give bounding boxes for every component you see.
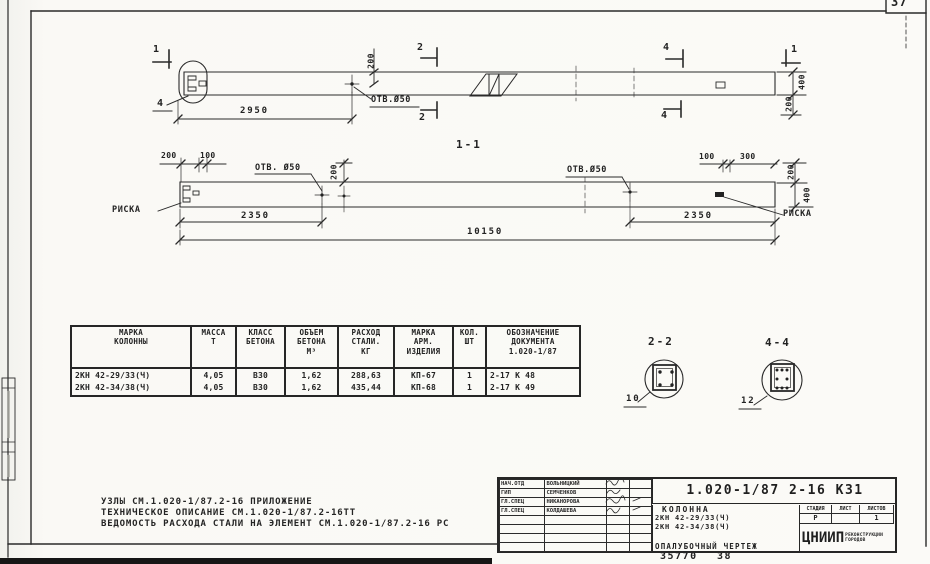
section-mark-1-right-label: 1 — [791, 44, 799, 55]
cell-value: КП-68 — [398, 382, 449, 394]
empty-cell — [607, 543, 630, 552]
sig-name: СЕМЧЕНКОВ — [545, 489, 607, 498]
sheets-header: ЛИСТОВ — [860, 505, 894, 515]
cell-value: 288,63 — [342, 370, 390, 382]
detail-2-2-callout: 10 — [626, 394, 640, 404]
subject-title: КОЛОННА — [662, 505, 710, 514]
note-line-2: ТЕХНИЧЕСКОЕ ОПИСАНИЕ СМ.1.020-1/87.2-16Т… — [101, 508, 356, 518]
sig-name: НИКАНОРОВА — [545, 498, 607, 507]
col-header-oboznachenie: ОБОЗНАЧЕНИЕ ДОКУМЕНТА 1.020-1/87 — [486, 326, 580, 368]
empty-cell — [545, 543, 607, 552]
sheet-value — [832, 514, 860, 524]
cell-kol: 1 1 — [453, 368, 486, 396]
empty-cell — [545, 516, 607, 525]
cell-value: 435,44 — [342, 382, 390, 394]
dim-2350-left: 2350 — [241, 211, 270, 221]
note-line-3: ВЕДОМОСТЬ РАСХОДА СТАЛИ НА ЭЛЕМЕНТ СМ.1.… — [101, 519, 449, 529]
dim-100-right: 100 — [699, 152, 715, 161]
document-number: 1.020-1/87 2-16 К31 — [652, 479, 897, 504]
sheets-value: 1 — [860, 514, 894, 524]
sig-role: ГЛ.СПЕЦ — [500, 498, 545, 507]
sig-signature-cell — [607, 489, 630, 498]
section-mark-2-top-label: 2 — [417, 42, 425, 53]
empty-cell — [500, 525, 545, 534]
section-mark-1-left-label: 1 — [153, 44, 161, 55]
hole-label-right: ОТВ.Ø50 — [567, 165, 607, 175]
cell-value: В30 — [240, 382, 281, 394]
cell-value: КП-67 — [398, 370, 449, 382]
signature-row-empty — [500, 525, 652, 534]
cell-value: 2КН 42-34/38(Ч) — [75, 382, 187, 394]
dim-200-right-vert: 200 — [787, 164, 796, 180]
detail-2-2-title: 2-2 — [648, 335, 674, 348]
organization-line-2: ГОРОДОВ — [845, 538, 883, 543]
empty-cell — [630, 534, 652, 543]
cell-value: 2КН 42-29/33(Ч) — [75, 370, 187, 382]
dim-2950: 2950 — [240, 106, 269, 116]
empty-cell — [500, 516, 545, 525]
empty-cell — [607, 516, 630, 525]
hole-label-plan: ОТВ.Ø50 — [371, 95, 411, 105]
cell-value: 4,05 — [195, 382, 232, 394]
cell-value: 1 — [457, 370, 482, 382]
dim-200-plan: 200 — [367, 53, 376, 69]
col-header-marka-arm: МАРКА АРМ. ИЗДЕЛИЯ — [394, 326, 453, 368]
signature-row-empty — [500, 516, 652, 525]
spec-header-row: МАРКА КОЛОННЫ МАССА Т КЛАСС БЕТОНА ОБЪЕМ… — [71, 326, 580, 368]
col-header-marka: МАРКА КОЛОННЫ — [71, 326, 191, 368]
cell-value: 2-17 К 48 — [490, 370, 576, 382]
sig-name: КОЛДАШЕВА — [545, 507, 607, 516]
cell-rashod: 288,63 435,44 — [338, 368, 394, 396]
signature-row: ГЛ.СПЕЦ КОЛДАШЕВА — [500, 507, 652, 516]
sig-role: НАЧ.ОТД — [500, 480, 545, 489]
dim-10150-total: 10150 — [467, 227, 503, 237]
organization-subtitle: РЕКОНСТРУКЦИИ ГОРОДОВ — [845, 533, 883, 543]
drawing-type: ОПАЛУБОЧНЫЙ ЧЕРТЕЖ — [655, 542, 758, 551]
cell-value: 1,62 — [289, 370, 334, 382]
col-header-rashod: РАСХОД СТАЛИ. КГ — [338, 326, 394, 368]
detail-4-4-title: 4-4 — [765, 336, 791, 349]
stage-header: СТАДИЯ — [800, 505, 832, 515]
dim-400-plan-end: 400 — [798, 74, 807, 90]
sig-role: ГЛ.СПЕЦ — [500, 507, 545, 516]
sig-date-cell — [630, 489, 652, 498]
spec-data-row: 2КН 42-29/33(Ч) 2КН 42-34/38(Ч) 4,05 4,0… — [71, 368, 580, 396]
sig-date-cell — [630, 498, 652, 507]
spec-table: МАРКА КОЛОННЫ МАССА Т КЛАСС БЕТОНА ОБЪЕМ… — [70, 325, 581, 397]
stage-value: Р — [800, 514, 832, 524]
empty-cell — [500, 534, 545, 543]
dim-2350-right: 2350 — [684, 211, 713, 221]
sheet-header: ЛИСТ — [832, 505, 860, 515]
riska-label-right: РИСКА — [783, 209, 812, 219]
detail-sections-lines — [624, 360, 802, 409]
empty-cell — [545, 534, 607, 543]
sig-signature-cell — [607, 507, 630, 516]
empty-cell — [630, 525, 652, 534]
sig-role: ГИП — [500, 489, 545, 498]
dim-300-right: 300 — [740, 152, 756, 161]
empty-cell — [607, 525, 630, 534]
drawing-sheet: 1 2 2 4 4 1 4 2950 ОТВ.Ø50 200 400 200 1… — [0, 0, 930, 564]
sig-date-cell — [630, 480, 652, 489]
cell-value: 2-17 К 49 — [490, 382, 576, 394]
hole-label-left: ОТВ. Ø50 — [255, 163, 301, 173]
detail-4-4-callout: 12 — [741, 396, 755, 406]
col-header-massa: МАССА Т — [191, 326, 236, 368]
organization-logo: ЦНИИП — [802, 530, 844, 546]
col-header-kol: КОЛ. ШТ — [453, 326, 486, 368]
organization-line-1: РЕКОНСТРУКЦИИ — [845, 533, 883, 538]
sig-signature-cell — [607, 498, 630, 507]
dim-100-left: 100 — [200, 151, 216, 160]
cell-obem: 1,62 1,62 — [285, 368, 338, 396]
signature-row-empty — [500, 543, 652, 552]
empty-cell — [500, 543, 545, 552]
cell-value: 1,62 — [289, 382, 334, 394]
cell-value: 1 — [457, 382, 482, 394]
cell-klass: В30 В30 — [236, 368, 285, 396]
sig-date-cell — [630, 507, 652, 516]
cell-marka: 2КН 42-29/33(Ч) 2КН 42-34/38(Ч) — [71, 368, 191, 396]
sig-signature-cell — [607, 480, 630, 489]
organization-cell: ЦНИИП РЕКОНСТРУКЦИИ ГОРОДОВ — [799, 524, 897, 552]
sig-name: ВОЛЬНИЦКИЙ — [545, 480, 607, 489]
empty-cell — [607, 534, 630, 543]
stage-grid: СТАДИЯ ЛИСТ ЛИСТОВ Р 1 — [799, 505, 896, 524]
cell-value: 4,05 — [195, 370, 232, 382]
empty-cell — [630, 516, 652, 525]
col-header-obem: ОБЪЕМ БЕТОНА М³ — [285, 326, 338, 368]
signature-table: НАЧ.ОТД ВОЛЬНИЦКИЙ ГИП СЕМЧЕНКОВ ГЛ.СПЕЦ… — [499, 479, 652, 552]
dim-200-left: 200 — [161, 151, 177, 160]
section-mark-4-bottom-label: 4 — [661, 110, 669, 121]
dim-400-right-vert: 400 — [803, 187, 812, 203]
cell-marka-arm: КП-67 КП-68 — [394, 368, 453, 396]
dim-200-mid: 200 — [330, 164, 339, 180]
detail-callout-4-label: 4 — [157, 98, 165, 109]
signature-row: ГИП СЕМЧЕНКОВ — [500, 489, 652, 498]
empty-cell — [630, 543, 652, 552]
subject-cell: КОЛОННА 2КН 42-29/33(Ч) 2КН 42-34/38(Ч) … — [652, 505, 800, 552]
dim-200-plan-end: 200 — [785, 96, 794, 112]
title-block: НАЧ.ОТД ВОЛЬНИЦКИЙ ГИП СЕМЧЕНКОВ ГЛ.СПЕЦ… — [497, 477, 897, 553]
section-view-title: 1-1 — [456, 138, 482, 151]
riska-label-left: РИСКА — [112, 205, 141, 215]
signature-row: НАЧ.ОТД ВОЛЬНИЦКИЙ — [500, 480, 652, 489]
subject-mark-2: 2КН 42-34/38(Ч) — [655, 523, 730, 531]
signature-row-empty — [500, 534, 652, 543]
col-header-klass: КЛАСС БЕТОНА — [236, 326, 285, 368]
signature-row: ГЛ.СПЕЦ НИКАНОРОВА — [500, 498, 652, 507]
section-mark-4-top-label: 4 — [663, 42, 671, 53]
cell-value: В30 — [240, 370, 281, 382]
note-line-1: УЗЛЫ СМ.1.020-1/87.2-16 ПРИЛОЖЕНИЕ — [101, 497, 312, 507]
sheet-corner-number: 37 — [891, 0, 907, 9]
section-mark-2-bottom-label: 2 — [419, 112, 427, 123]
cell-massa: 4,05 4,05 — [191, 368, 236, 396]
subject-mark-1: 2КН 42-29/33(Ч) — [655, 514, 730, 522]
empty-cell — [545, 525, 607, 534]
cell-oboznachenie: 2-17 К 48 2-17 К 49 — [486, 368, 580, 396]
